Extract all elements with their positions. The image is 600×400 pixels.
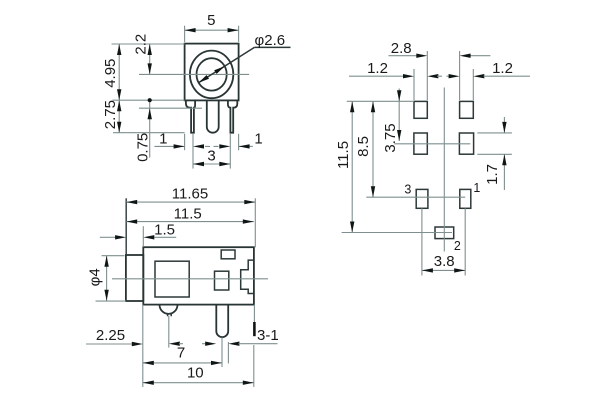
svg-text:φ4: φ4 [86, 268, 103, 286]
svg-text:1.7: 1.7 [484, 164, 501, 185]
svg-text:11.65: 11.65 [172, 185, 208, 202]
svg-text:3.8: 3.8 [434, 253, 455, 270]
svg-text:2.2: 2.2 [133, 34, 150, 55]
svg-text:2.75: 2.75 [102, 100, 119, 129]
svg-text:3: 3 [404, 183, 411, 197]
svg-text:1: 1 [159, 131, 167, 148]
svg-text:1.2: 1.2 [367, 60, 388, 77]
svg-text:2.8: 2.8 [391, 40, 412, 57]
svg-text:8.5: 8.5 [355, 136, 372, 157]
svg-text:11.5: 11.5 [174, 206, 202, 223]
svg-text:2.25: 2.25 [96, 327, 125, 344]
svg-text:10: 10 [187, 364, 204, 381]
svg-text:1: 1 [254, 131, 262, 148]
svg-text:2: 2 [454, 239, 461, 253]
svg-text:1.5: 1.5 [154, 222, 175, 239]
svg-text:7: 7 [177, 344, 185, 361]
svg-text:φ2.6: φ2.6 [255, 32, 286, 49]
svg-text:5: 5 [207, 12, 215, 29]
svg-text:0.75: 0.75 [135, 133, 152, 162]
svg-text:1.2: 1.2 [492, 60, 513, 77]
svg-text:3.75: 3.75 [382, 123, 399, 152]
svg-text:3-1: 3-1 [257, 327, 279, 344]
svg-text:11.5: 11.5 [335, 141, 352, 169]
svg-text:1: 1 [473, 181, 480, 195]
svg-text:4.95: 4.95 [102, 59, 119, 88]
svg-text:3: 3 [207, 147, 215, 164]
